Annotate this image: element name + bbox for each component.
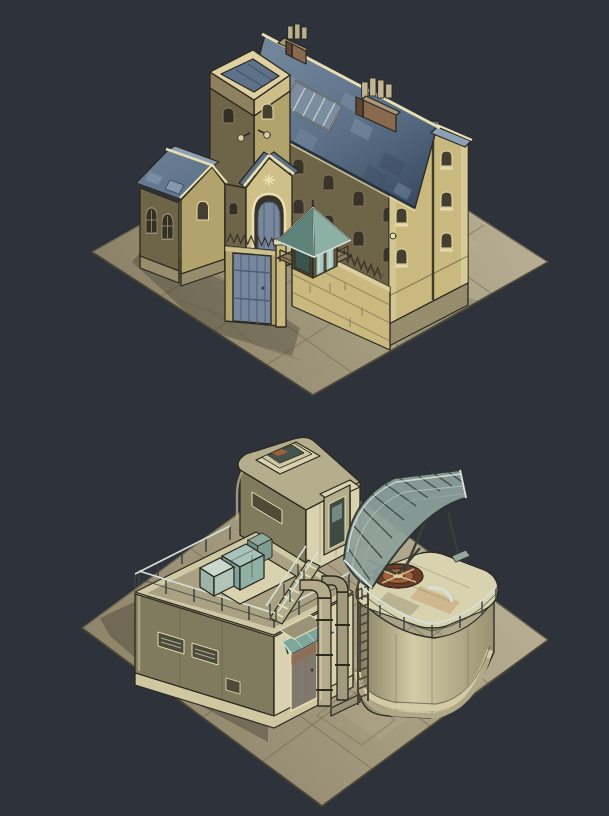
gate: Blue steel gate	[233, 253, 271, 324]
module-door	[329, 496, 345, 549]
scene-prison: Isometric prison building on a stone pla…	[0, 0, 609, 408]
scene-radar-station: Isometric industrial radar station on a …	[0, 408, 609, 816]
recessed-window	[229, 203, 238, 215]
wall-lamp	[390, 233, 396, 239]
bracket-strut	[448, 512, 458, 554]
antenna-bracket	[452, 550, 470, 562]
gable-quoin-right	[461, 139, 468, 287]
concept-art-board: Isometric prison building on a stone pla…	[0, 0, 609, 816]
gate-handle	[261, 286, 264, 289]
annex-gable-window	[197, 201, 209, 220]
